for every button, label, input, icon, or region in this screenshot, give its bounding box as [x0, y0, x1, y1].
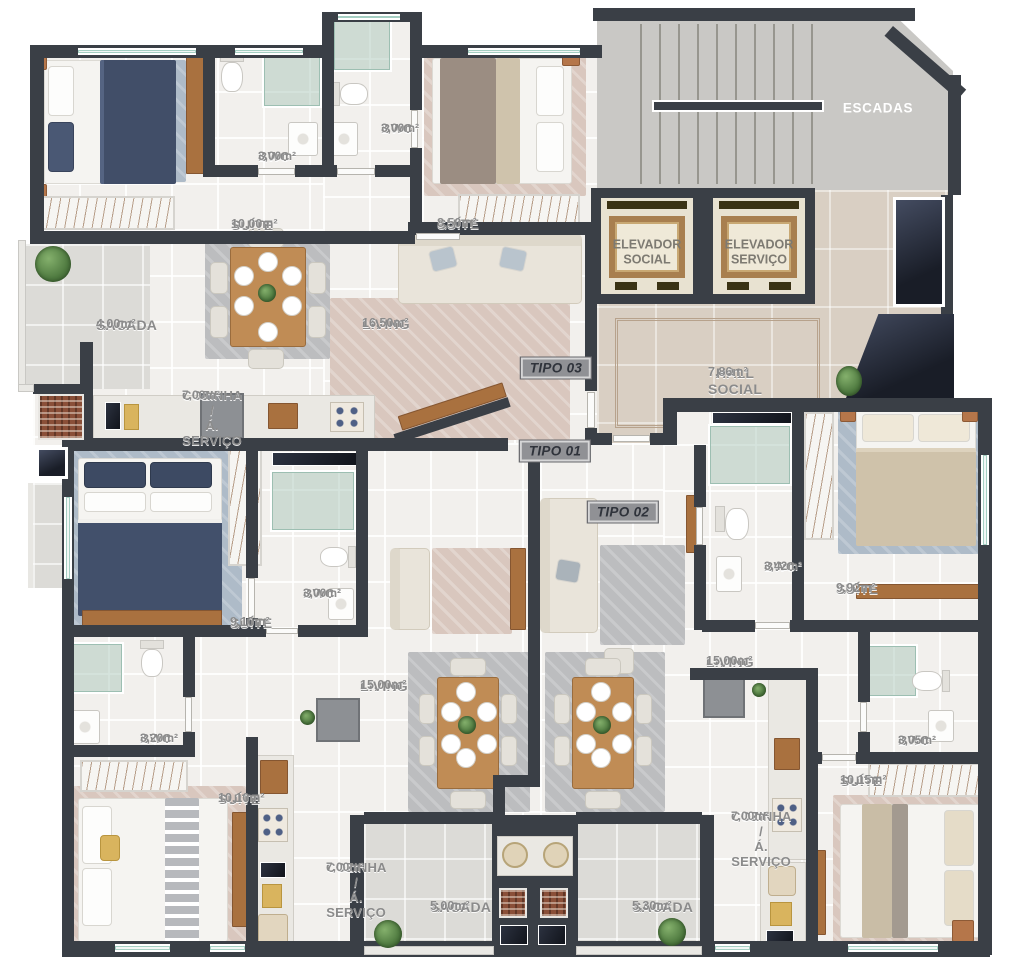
tv-panel [712, 412, 792, 424]
plant-icon [593, 716, 611, 734]
plate-icon [282, 266, 302, 286]
wall [700, 815, 714, 955]
chair [450, 791, 486, 809]
shower-glass [332, 16, 392, 72]
pillow [82, 868, 112, 926]
pillow [84, 462, 146, 488]
toilet-icon [725, 508, 749, 540]
wardrobe [40, 196, 175, 230]
window [981, 455, 989, 545]
pillow [554, 558, 581, 584]
wall [694, 545, 706, 630]
label-elevador-social: ELEVADOR SOCIAL [613, 237, 682, 267]
window [848, 944, 938, 952]
wall [856, 752, 990, 764]
badge-tipo-02: TIPO 02 [587, 501, 659, 524]
blanket [165, 798, 199, 942]
door-leaf [696, 507, 703, 545]
toilet-icon [221, 62, 243, 92]
bed-suite-1000 [36, 57, 184, 187]
window [715, 944, 750, 952]
wall [410, 12, 422, 110]
chair [585, 791, 621, 809]
grill-sacada-1 [499, 888, 527, 918]
plate-icon [612, 734, 632, 754]
parapet [18, 384, 34, 392]
wall [62, 625, 258, 637]
blanket [78, 519, 222, 616]
blanket [440, 58, 496, 184]
wall [790, 620, 990, 632]
door-leaf [337, 168, 375, 175]
door-leaf [248, 578, 255, 618]
plant-sacada-500 [374, 920, 402, 948]
wall [375, 165, 422, 177]
bed-suite-910 [74, 453, 226, 621]
plate-icon [234, 266, 254, 286]
tv-panel [105, 402, 121, 430]
wall [246, 737, 258, 955]
shaft-left-small [36, 447, 68, 479]
sink-icon [70, 710, 100, 744]
toilet-tank [715, 506, 725, 532]
tv-panel [500, 925, 528, 945]
chair [308, 306, 326, 338]
stairs-rail [652, 100, 824, 112]
parapet [18, 240, 26, 390]
rug [600, 545, 685, 645]
badge-tipo-01: TIPO 01 [519, 440, 591, 463]
grill-sacada-2 [540, 888, 568, 918]
plant-icon [258, 284, 276, 302]
chair [636, 694, 652, 724]
tv-panel [272, 452, 358, 466]
window [338, 14, 400, 20]
wall [806, 668, 818, 955]
window [235, 48, 303, 55]
toilet-icon [340, 83, 368, 105]
bed-suite-992 [852, 402, 980, 548]
sink-icon [716, 556, 742, 592]
toilet-tank [942, 670, 950, 692]
pillow [536, 122, 564, 172]
plate-icon [576, 702, 596, 722]
fridge-tipo01 [316, 698, 360, 742]
parapet [576, 946, 702, 955]
wall [62, 438, 508, 451]
pillow [48, 122, 74, 172]
door-leaf [258, 168, 295, 175]
sink-icon [330, 122, 358, 156]
tv-panel [538, 925, 566, 945]
pillow [536, 66, 564, 116]
plant-icon [752, 683, 766, 697]
chair [450, 658, 486, 676]
stove-tipo03 [330, 402, 364, 432]
chair [554, 694, 570, 724]
plant-sacada-400 [35, 246, 71, 282]
pillow [150, 492, 212, 512]
plate-icon [612, 702, 632, 722]
wardrobe [804, 412, 834, 540]
wardrobe [80, 760, 188, 792]
wall [663, 398, 990, 412]
chair [636, 736, 652, 766]
plate-icon [477, 734, 497, 754]
shower-glass [270, 470, 356, 532]
stove-tipo01 [258, 808, 288, 842]
chair [585, 658, 621, 676]
wood-furniture [268, 403, 298, 429]
door-leaf [822, 754, 856, 761]
shower-glass [66, 642, 124, 694]
sofa-tipo01 [390, 548, 430, 630]
plate-icon [456, 682, 476, 702]
pillow [84, 492, 146, 512]
window [64, 497, 72, 579]
toilet-tank [348, 546, 356, 568]
nightstand-icon [952, 920, 974, 942]
wall [493, 787, 505, 815]
window [468, 48, 580, 55]
tv-panel [260, 862, 286, 878]
chair [308, 262, 326, 294]
plate-icon [441, 702, 461, 722]
plate-icon [477, 702, 497, 722]
wall [322, 165, 337, 177]
plant-hall [836, 366, 862, 396]
chair [419, 694, 435, 724]
floor-left-balcony [28, 483, 64, 588]
wall [298, 625, 368, 637]
plate-icon [258, 322, 278, 342]
wall [948, 75, 961, 195]
badge-tipo-03: TIPO 03 [520, 357, 592, 380]
pillow [944, 810, 974, 866]
wall [62, 745, 195, 757]
wall [858, 632, 870, 702]
pillow [862, 414, 914, 442]
window [78, 48, 196, 55]
label-escadas: ESCADAS [843, 101, 913, 116]
chair [210, 306, 228, 338]
wall [593, 8, 915, 21]
wall [322, 12, 334, 177]
wall [356, 443, 368, 637]
toilet-icon [141, 649, 163, 677]
plant-icon [300, 710, 315, 725]
window [115, 944, 170, 952]
wall [30, 231, 415, 244]
plate-icon [282, 296, 302, 316]
chair [501, 736, 517, 766]
sofa-tipo03 [398, 234, 582, 304]
plate-icon [258, 252, 278, 272]
door-leaf [416, 233, 460, 240]
label-elevador-servico: ELEVADOR SERVIÇO [725, 237, 794, 267]
shower-glass [708, 424, 792, 486]
wall [493, 775, 540, 787]
wood-furniture [774, 738, 800, 770]
wood-furniture [510, 548, 526, 630]
chair [501, 694, 517, 724]
wall [33, 384, 93, 394]
shaft-elevator-side [893, 197, 945, 307]
wall [203, 45, 215, 177]
plate-icon [576, 734, 596, 754]
wall [246, 443, 258, 578]
bed-suite-850 [432, 54, 580, 188]
wall [597, 433, 612, 445]
pillow [150, 462, 212, 488]
wood-furniture [82, 610, 222, 626]
pillow [48, 66, 74, 116]
chair [419, 736, 435, 766]
shower-glass [262, 50, 322, 108]
chair [248, 349, 284, 369]
door-leaf [185, 697, 192, 732]
wall [702, 620, 755, 632]
door-leaf [860, 702, 867, 732]
plate-icon [456, 748, 476, 768]
plant-sacada-530 [658, 918, 686, 946]
plate-icon [591, 748, 611, 768]
rug [432, 548, 512, 634]
bed-suite-1010 [74, 793, 234, 945]
window [210, 944, 245, 952]
door-leaf [755, 622, 790, 629]
plant-icon [458, 716, 476, 734]
door-leaf [613, 435, 650, 442]
wall [364, 812, 494, 824]
blanket [496, 58, 520, 184]
plate-icon [591, 682, 611, 702]
wall [576, 812, 702, 824]
chair [554, 736, 570, 766]
wall [694, 445, 706, 507]
wood-furniture [260, 760, 288, 794]
toilet-icon [912, 671, 942, 691]
blanket [856, 448, 976, 546]
blanket [892, 804, 908, 938]
blanket [100, 60, 176, 184]
fridge-tipo02 [703, 676, 745, 718]
toilet-icon [320, 547, 348, 567]
blanket [862, 804, 892, 938]
wall [183, 637, 195, 697]
door-leaf [587, 392, 595, 428]
plate-icon [441, 734, 461, 754]
toilet-tank [140, 640, 164, 649]
floor-plan-canvas: SUÍTE10,00m² BWC3,00m² BWC3,00m² SUÍTE8,… [0, 0, 1024, 973]
pillow [100, 835, 120, 861]
chair [210, 262, 228, 294]
wall [792, 406, 804, 632]
wall [528, 443, 540, 775]
shower-glass [866, 644, 918, 698]
wall [203, 165, 258, 177]
plate-icon [234, 296, 254, 316]
grill-left [38, 394, 84, 440]
wall [30, 45, 44, 244]
pillow [944, 870, 974, 926]
